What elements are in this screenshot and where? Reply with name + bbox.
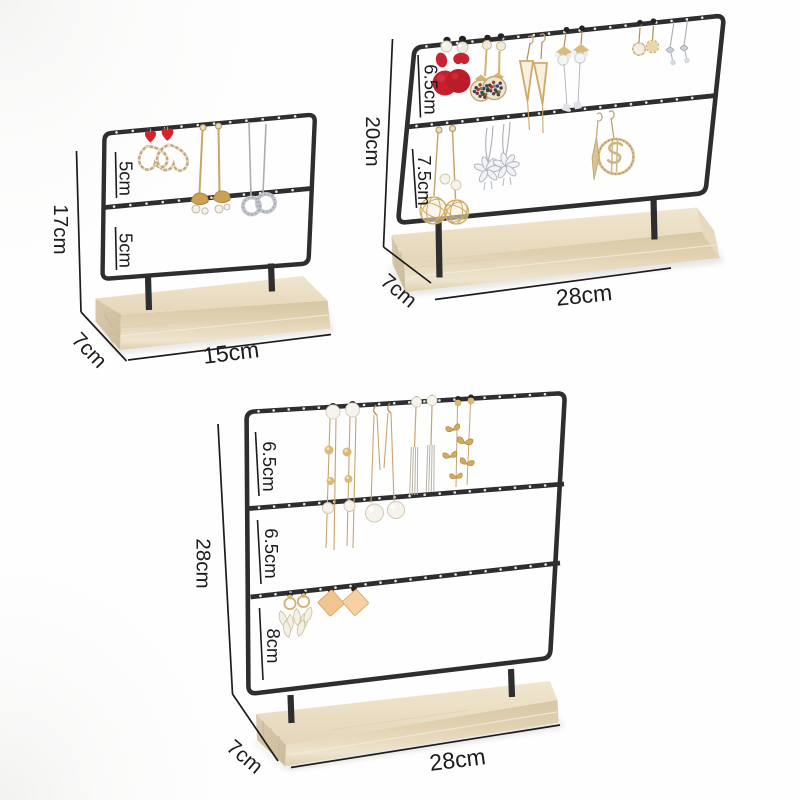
svg-text:17cm: 17cm bbox=[49, 204, 72, 254]
svg-text:20cm: 20cm bbox=[361, 116, 384, 166]
svg-text:28cm: 28cm bbox=[192, 538, 215, 588]
svg-text:5cm: 5cm bbox=[116, 161, 137, 196]
svg-text:6.5cm: 6.5cm bbox=[421, 64, 442, 114]
svg-text:7.5cm: 7.5cm bbox=[414, 155, 435, 205]
svg-text:6.5cm: 6.5cm bbox=[259, 441, 280, 491]
svg-text:8cm: 8cm bbox=[263, 629, 284, 664]
svg-text:5cm: 5cm bbox=[116, 233, 137, 268]
svg-text:6.5cm: 6.5cm bbox=[261, 528, 282, 578]
